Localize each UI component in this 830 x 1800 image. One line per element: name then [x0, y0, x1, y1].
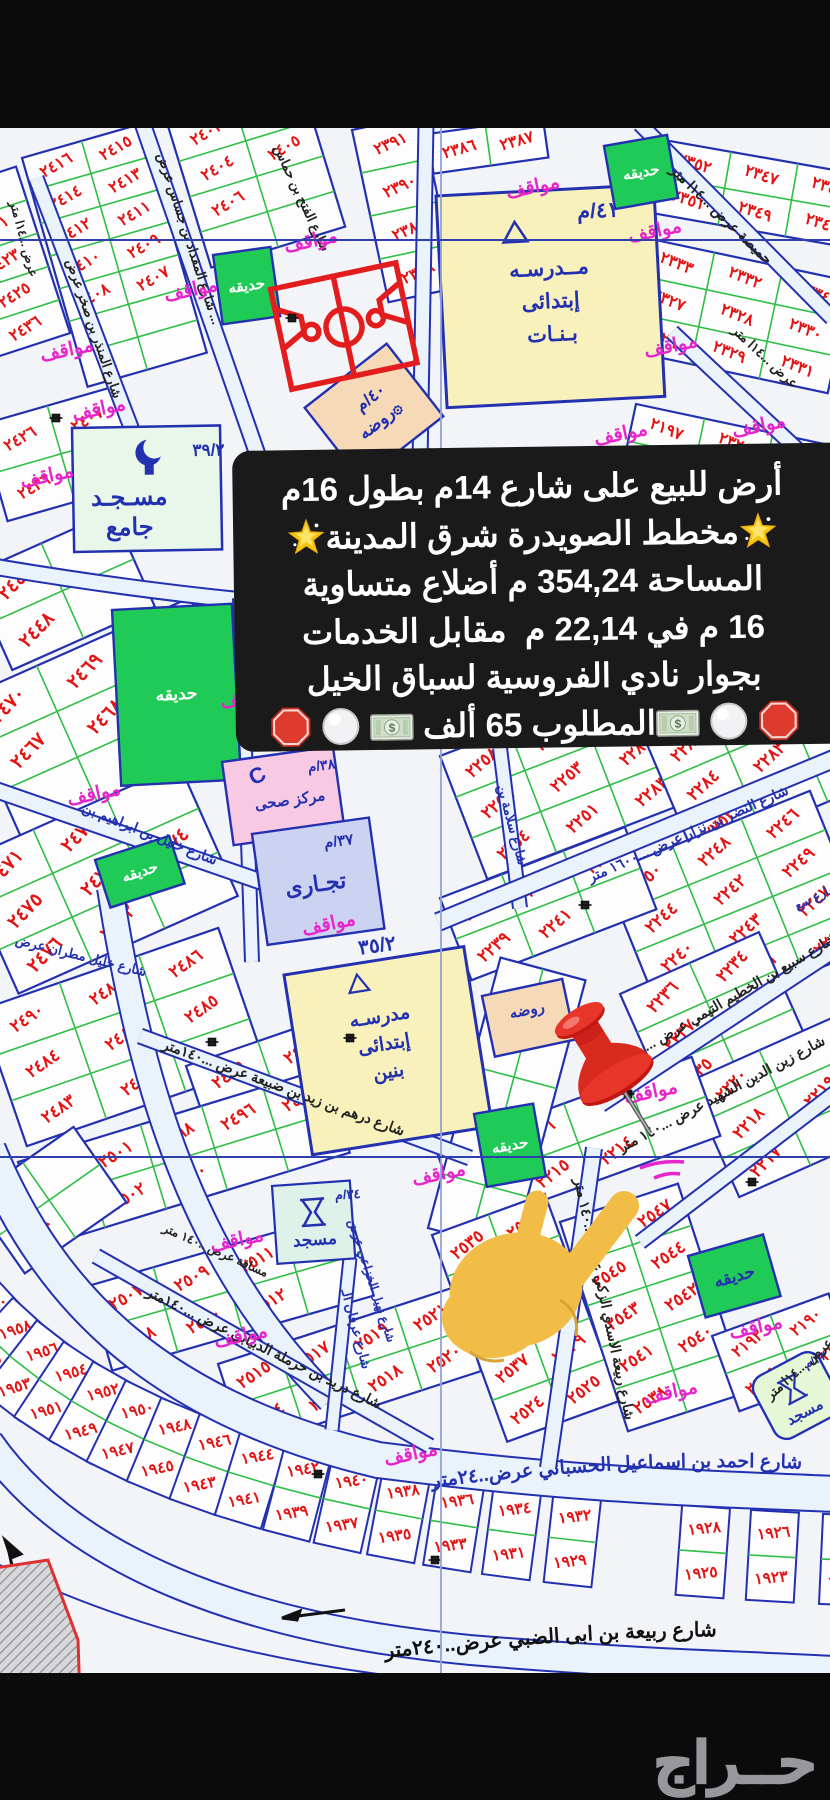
svg-text:١٩٢٣: ١٩٢٣	[754, 1568, 789, 1588]
svg-text:مسجد: مسجد	[292, 1229, 337, 1251]
svg-text:١٩٢٦: ١٩٢٦	[756, 1523, 791, 1543]
svg-text:بـنـات: بـنـات	[527, 322, 579, 348]
svg-text:١٩٢٨: ١٩٢٨	[687, 1519, 722, 1539]
svg-text:إبتدائى: إبتدائى	[521, 289, 581, 316]
svg-text:$: $	[674, 716, 681, 730]
svg-text:٣٤/م: ٣٤/م	[334, 1186, 361, 1204]
svg-text:مسـجـد: مسـجـد	[91, 483, 168, 511]
svg-text:جامع: جامع	[106, 514, 154, 543]
svg-text:حديقه: حديقه	[155, 684, 198, 705]
svg-text:١٩٢١: ١٩٢١	[827, 1572, 830, 1592]
svg-text:٤١/م: ٤١/م	[576, 198, 619, 224]
svg-text:١٩٢٥: ١٩٢٥	[684, 1564, 719, 1584]
svg-text:$: $	[388, 720, 395, 734]
svg-text:٣٩/٢: ٣٩/٢	[192, 440, 224, 460]
